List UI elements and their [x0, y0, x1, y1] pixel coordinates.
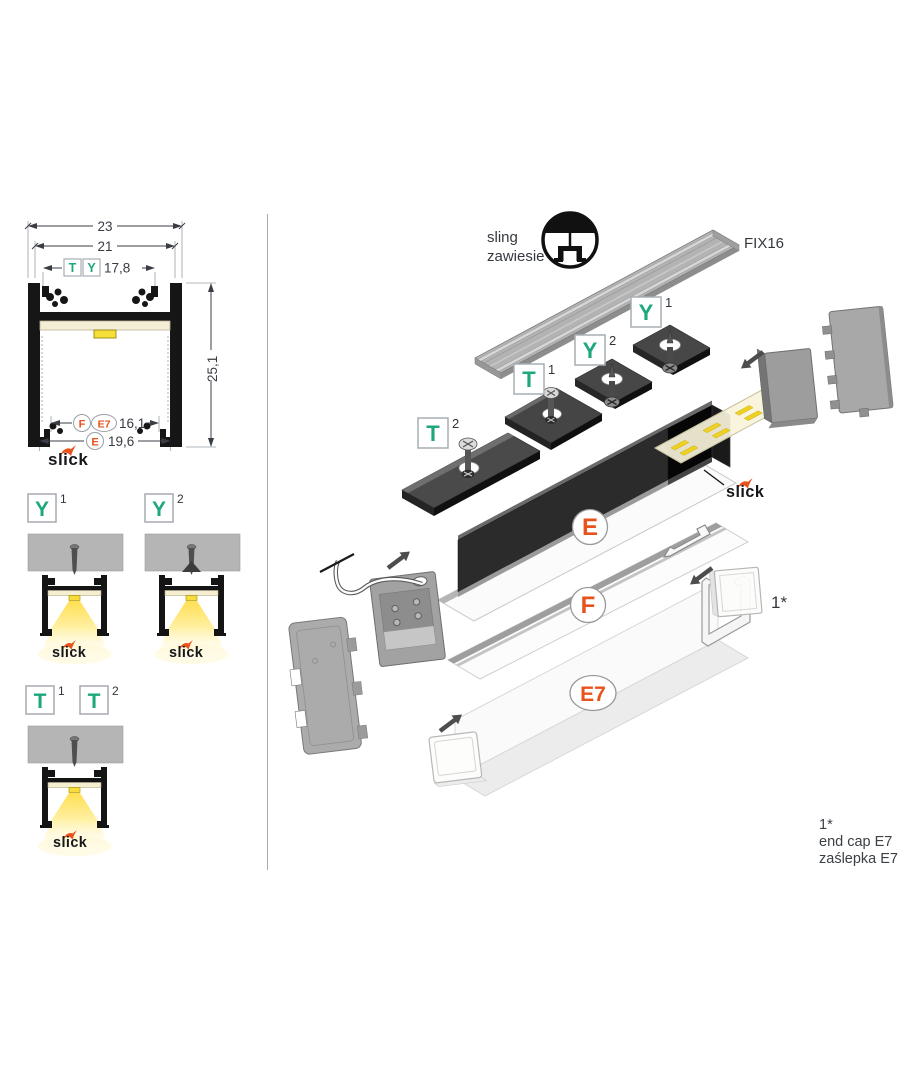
dimension-fe7-width: F E7 16,1	[52, 415, 158, 432]
variant-y-diagrams: Y 1 Y 2	[14, 486, 258, 678]
dimension-height: 25,1	[205, 284, 220, 446]
superscript: 2	[177, 492, 184, 506]
footnote-marker: 1*	[819, 817, 898, 834]
superscript: 2	[609, 333, 616, 348]
led-chip	[94, 330, 116, 338]
footnote-line1: end cap E7	[819, 834, 898, 851]
svg-text:Y: Y	[639, 300, 654, 325]
cross-section-diagram: slick	[18, 210, 242, 468]
variant-t-diagram: T 1 T 2	[14, 676, 174, 874]
endcap-marker: 1*	[771, 593, 787, 612]
end-cap-right-small	[757, 343, 818, 428]
slick-logo	[48, 445, 88, 468]
svg-text:17,8: 17,8	[104, 261, 130, 276]
svg-text:T: T	[88, 690, 101, 713]
led-pcb	[40, 321, 170, 330]
superscript: 1	[60, 492, 67, 506]
end-cap-right-large	[821, 306, 894, 420]
footnote-line2: zaślepka E7	[819, 851, 898, 868]
svg-text:Y: Y	[152, 498, 166, 521]
bracket-y2	[575, 359, 652, 409]
svg-text:F: F	[79, 419, 86, 431]
svg-text:E7: E7	[98, 419, 111, 431]
svg-text:T: T	[522, 367, 536, 392]
svg-text:E7: E7	[580, 683, 606, 706]
svg-text:sling: sling	[487, 229, 518, 246]
svg-text:T: T	[69, 261, 77, 275]
end-cap-left-large	[284, 616, 369, 755]
svg-text:T: T	[426, 421, 440, 446]
svg-text:F: F	[581, 592, 596, 619]
svg-text:25,1: 25,1	[205, 356, 220, 382]
dimension-inner-width: 21	[32, 239, 178, 254]
footnote: 1* end cap E7 zaślepka E7	[819, 817, 898, 868]
superscript: 1	[58, 684, 65, 698]
superscript: 2	[112, 684, 119, 698]
technical-drawing-canvas: slick	[0, 0, 910, 1080]
rail-label: FIX16	[744, 235, 784, 252]
svg-text:23: 23	[97, 219, 112, 234]
svg-text:Y: Y	[583, 338, 598, 363]
end-cap-translucent-bottom	[429, 731, 487, 787]
dimension-e-width: E 19,6	[41, 433, 170, 450]
assembly-arrow	[388, 552, 410, 569]
svg-text:zawiesie: zawiesie	[487, 248, 545, 265]
end-cap-cable	[369, 571, 445, 666]
svg-text:E: E	[582, 514, 598, 541]
exploded-assembly-diagram: sling zawiesie FIX16	[268, 195, 910, 895]
svg-text:19,6: 19,6	[108, 434, 134, 449]
end-cap-translucent-right	[709, 564, 762, 617]
sling-label: sling zawiesie	[487, 229, 545, 265]
profile-clip-detail	[42, 286, 158, 307]
dimension-ty-width: T Y 17,8	[44, 259, 154, 276]
superscript: 1	[665, 295, 672, 310]
bracket-y1	[633, 325, 710, 375]
superscript: 2	[452, 416, 459, 431]
variant-y2: Y 2	[145, 492, 240, 664]
sling-icon	[543, 213, 597, 267]
svg-text:Y: Y	[35, 498, 49, 521]
svg-text:Y: Y	[87, 261, 96, 275]
svg-text:16,1: 16,1	[119, 416, 145, 431]
svg-text:21: 21	[97, 239, 112, 254]
svg-text:E: E	[91, 437, 98, 449]
variant-y1: Y 1	[28, 492, 123, 664]
superscript: 1	[548, 362, 555, 377]
svg-text:T: T	[34, 690, 47, 713]
dimension-outer-width: 23	[25, 219, 185, 234]
